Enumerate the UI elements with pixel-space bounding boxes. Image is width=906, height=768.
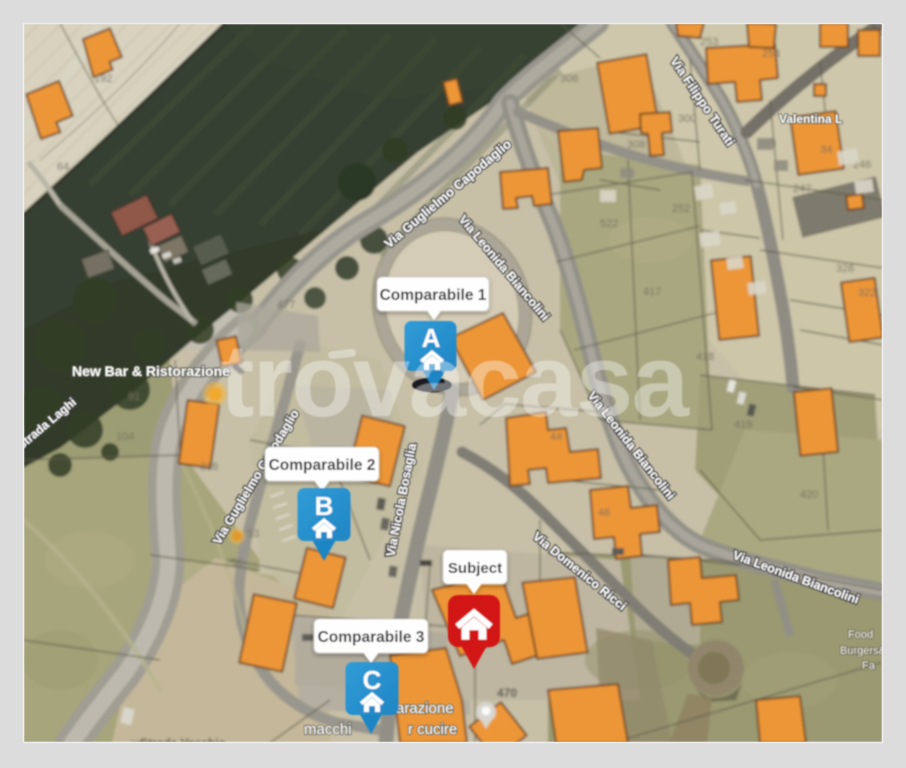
svg-text:arazione: arazione xyxy=(396,700,454,717)
svg-text:Valentina L: Valentina L xyxy=(779,112,842,126)
svg-text:B: B xyxy=(315,491,334,521)
svg-text:trovacasa: trovacasa xyxy=(220,323,690,438)
svg-text:r cucire: r cucire xyxy=(408,721,457,738)
svg-text:Subject: Subject xyxy=(448,560,502,577)
svg-text:New Bar & Ristorazione: New Bar & Ristorazione xyxy=(72,363,230,379)
svg-text:Food: Food xyxy=(848,629,873,641)
svg-text:Comparabile 1: Comparabile 1 xyxy=(380,287,487,304)
svg-text:C: C xyxy=(363,665,382,695)
svg-text:Fa: Fa xyxy=(862,660,876,672)
svg-text:Burgers&: Burgers& xyxy=(840,645,887,657)
svg-text:macchi: macchi xyxy=(304,721,352,738)
svg-text:Comparabile 3: Comparabile 3 xyxy=(318,629,425,646)
svg-text:Comparabile 2: Comparabile 2 xyxy=(269,457,376,474)
